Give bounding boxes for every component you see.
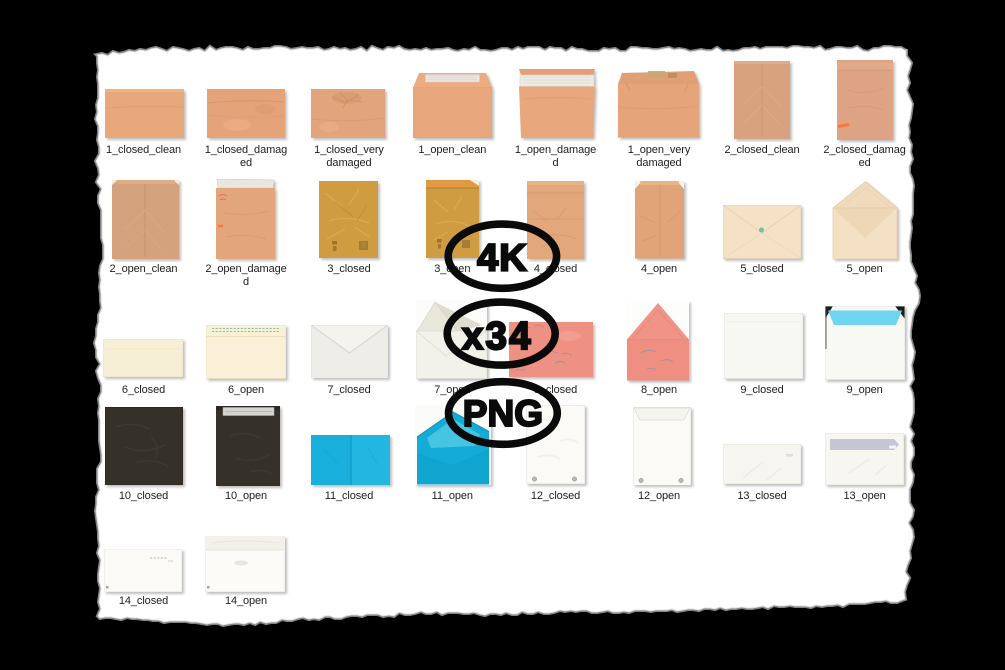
svg-text:x34: x34 bbox=[462, 315, 533, 358]
svg-text:PNG: PNG bbox=[463, 393, 543, 434]
svg-text:4K: 4K bbox=[477, 237, 528, 279]
